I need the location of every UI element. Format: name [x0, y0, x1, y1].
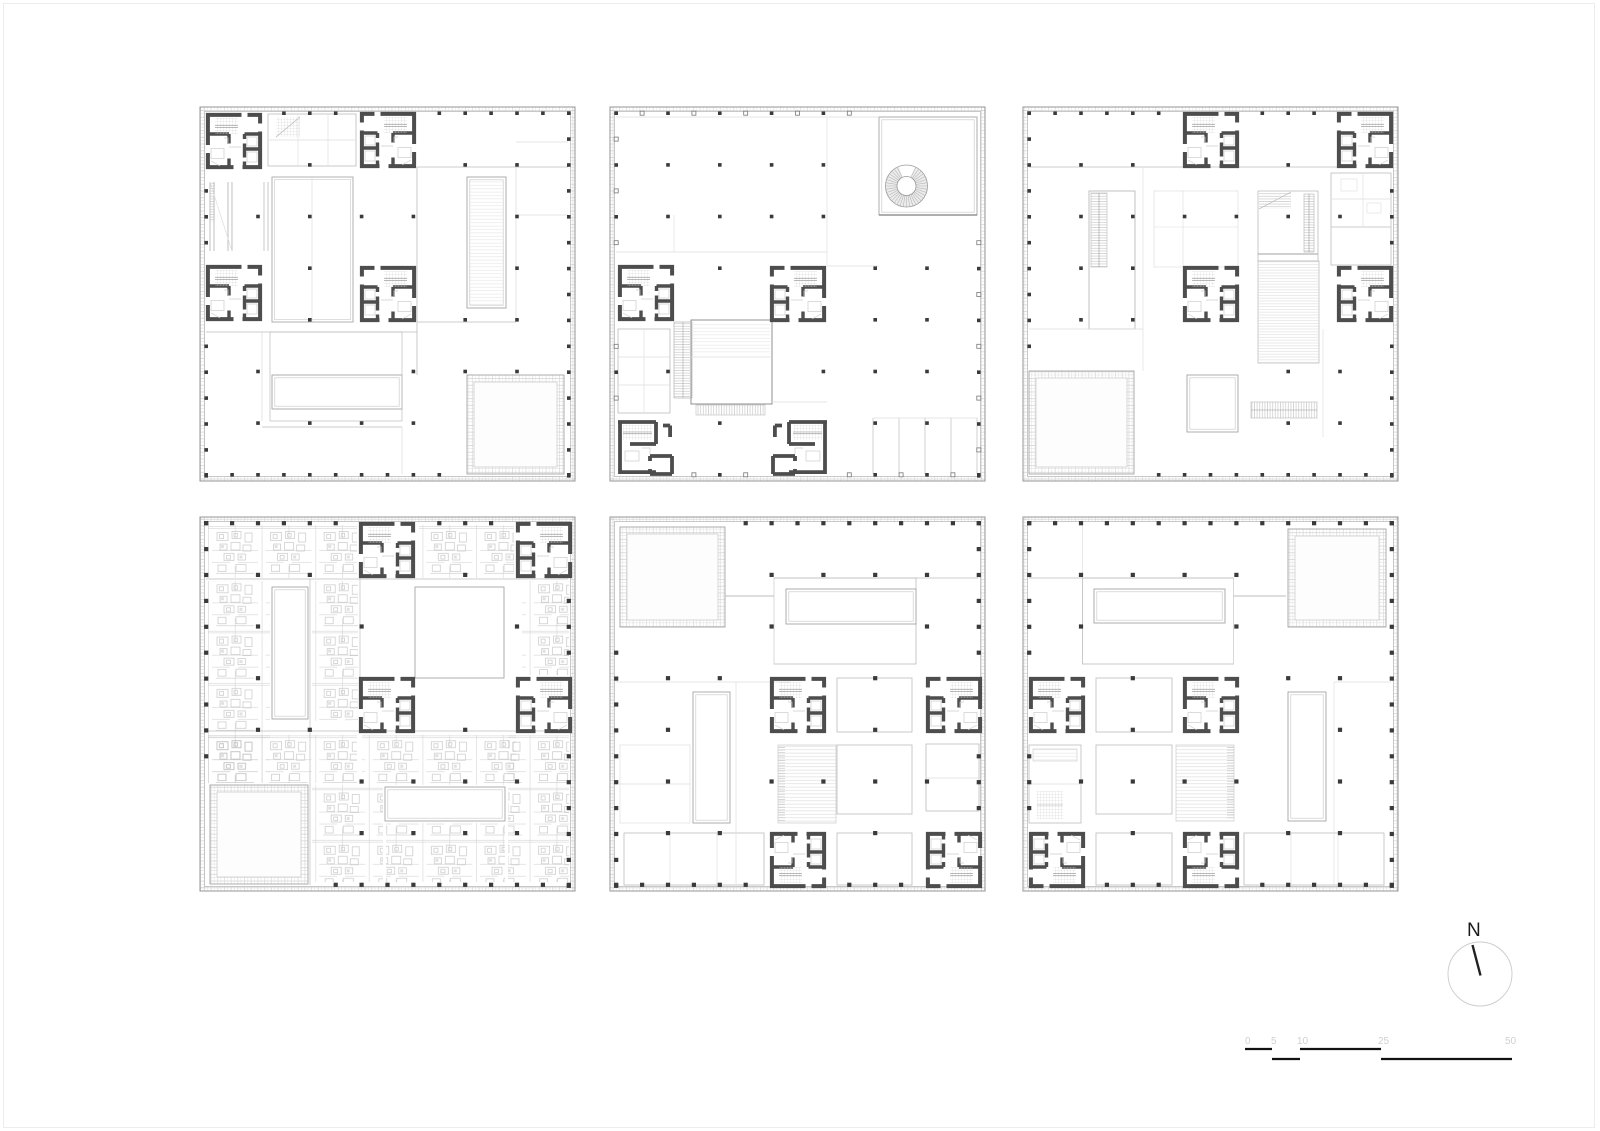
svg-text:50: 50 [1505, 1036, 1517, 1047]
svg-text:5: 5 [1271, 1036, 1277, 1047]
svg-text:N: N [1467, 920, 1481, 941]
svg-text:10: 10 [1297, 1036, 1309, 1047]
svg-text:0: 0 [1245, 1036, 1251, 1047]
svg-text:25: 25 [1378, 1036, 1390, 1047]
